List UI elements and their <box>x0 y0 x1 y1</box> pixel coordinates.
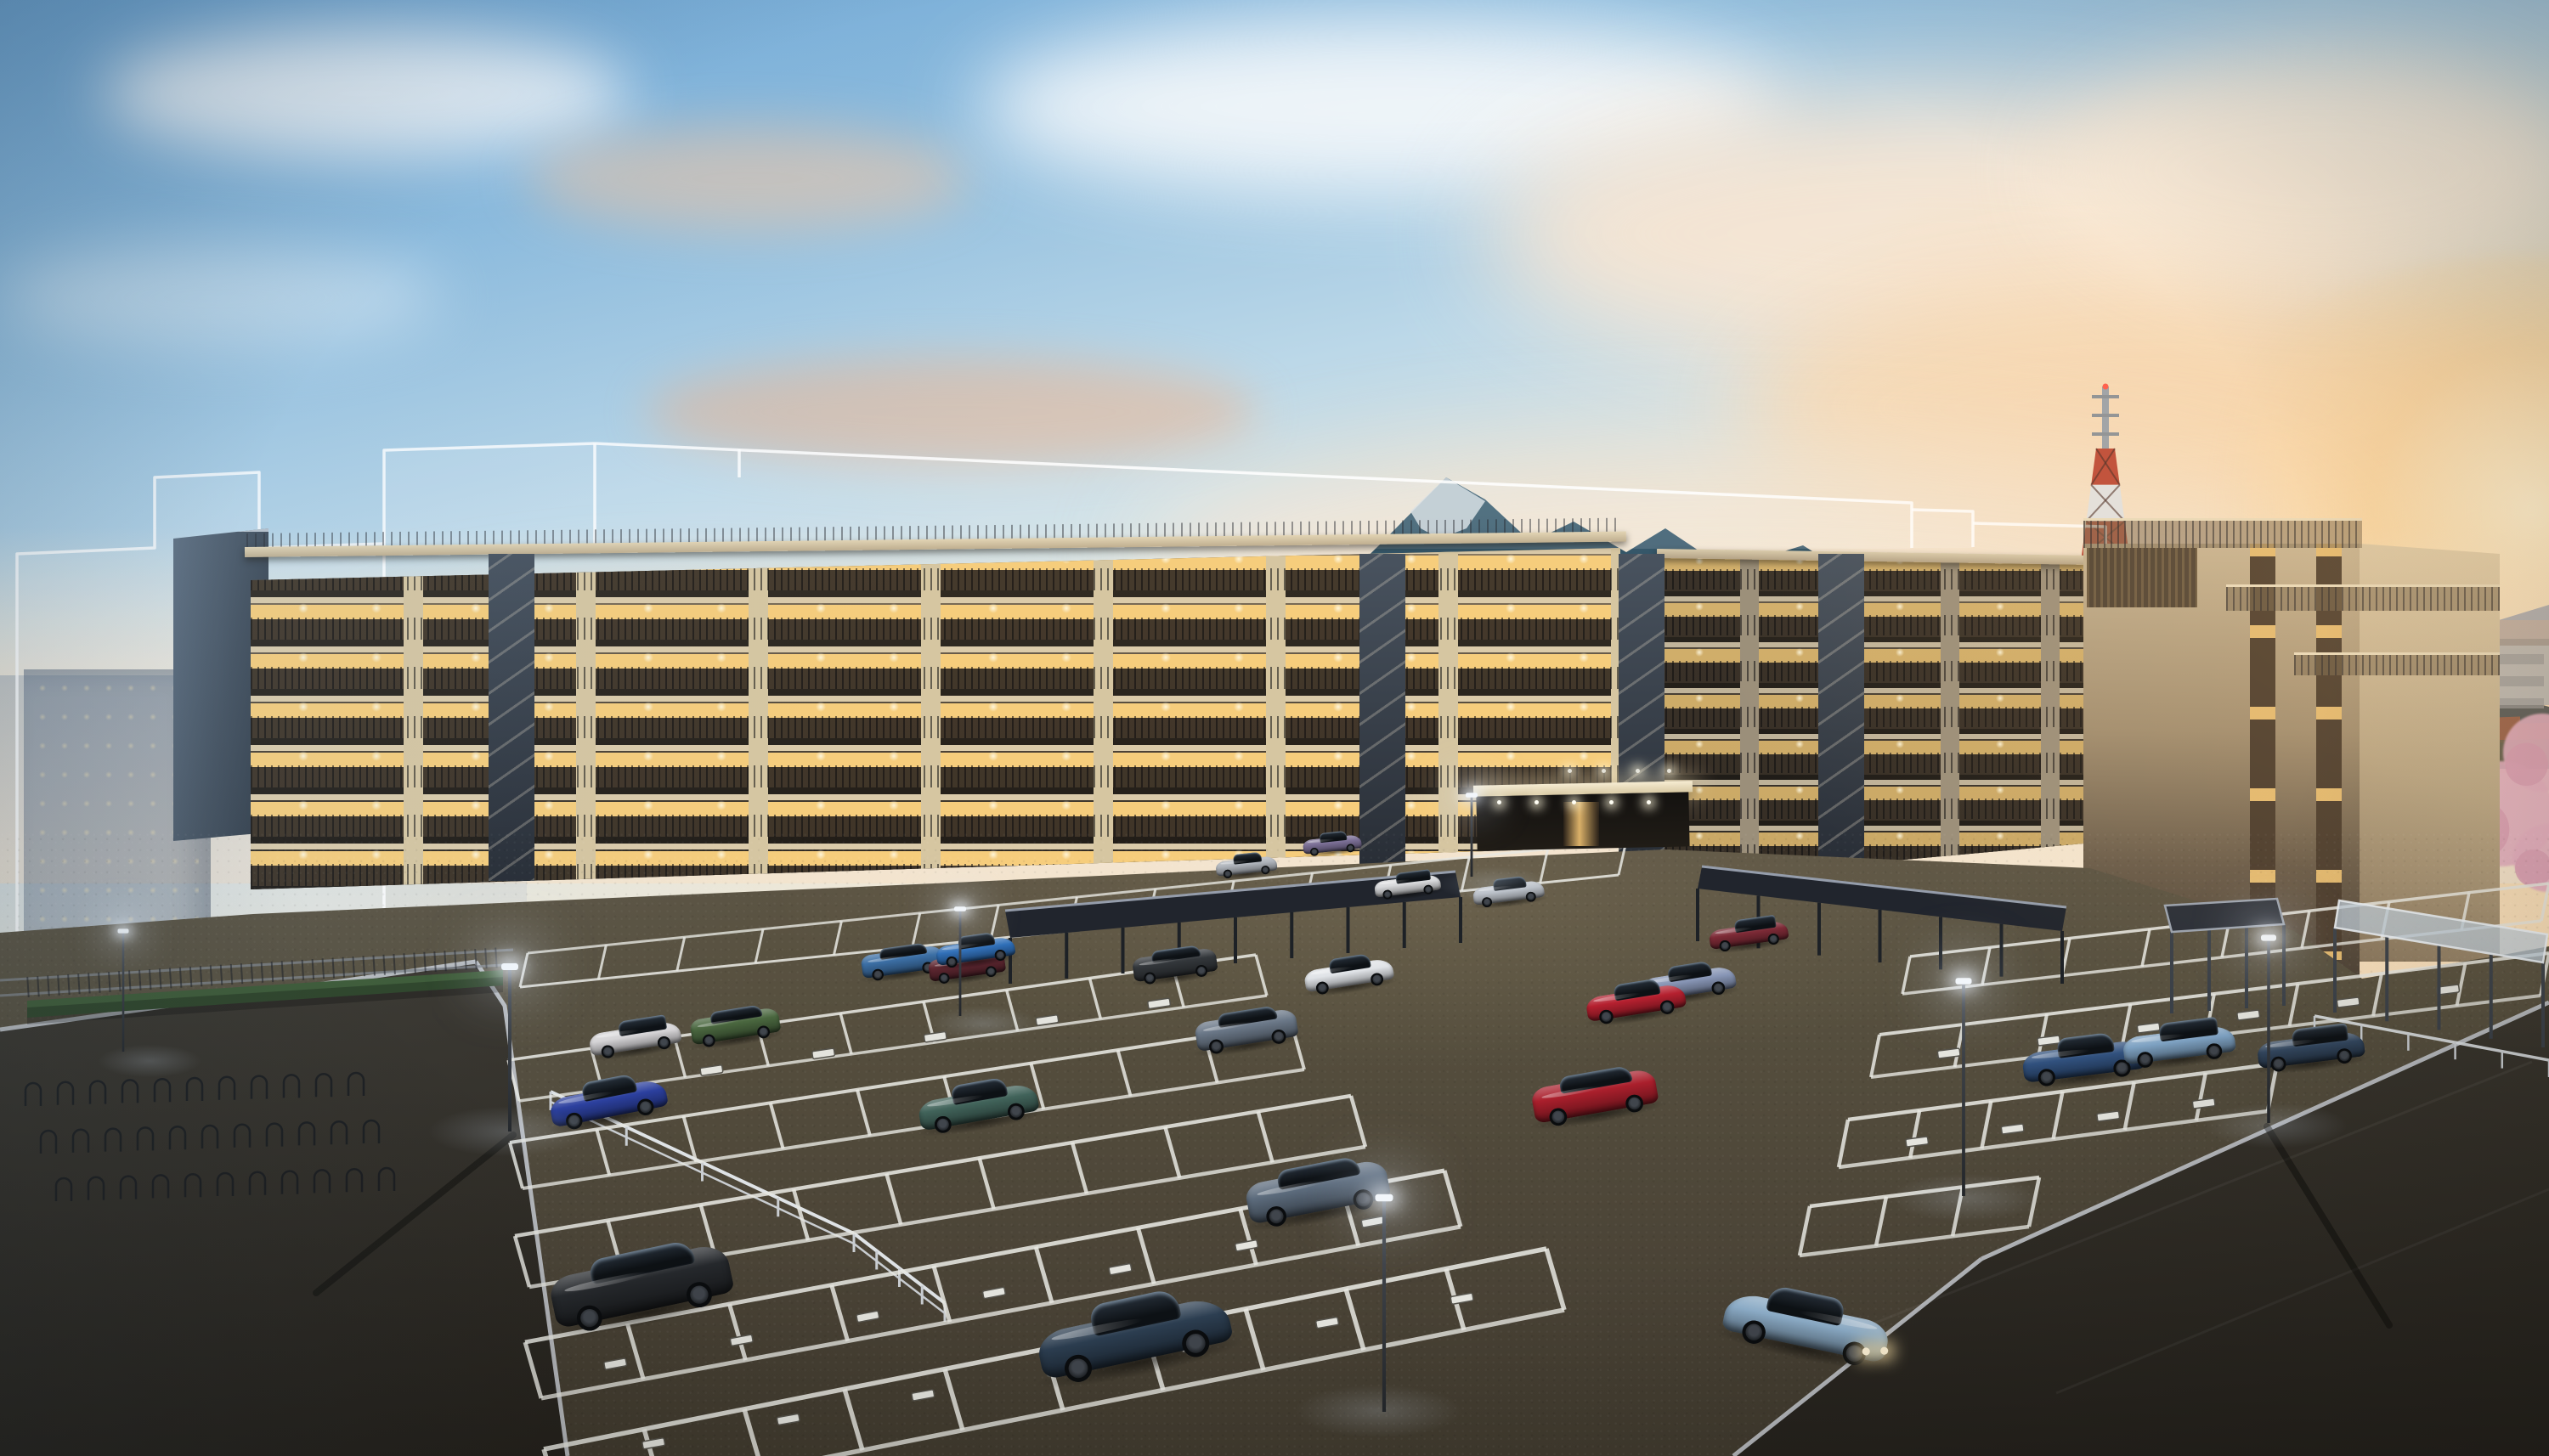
vignette-overlay <box>0 0 2549 1456</box>
rendering-stage <box>0 0 2549 1456</box>
